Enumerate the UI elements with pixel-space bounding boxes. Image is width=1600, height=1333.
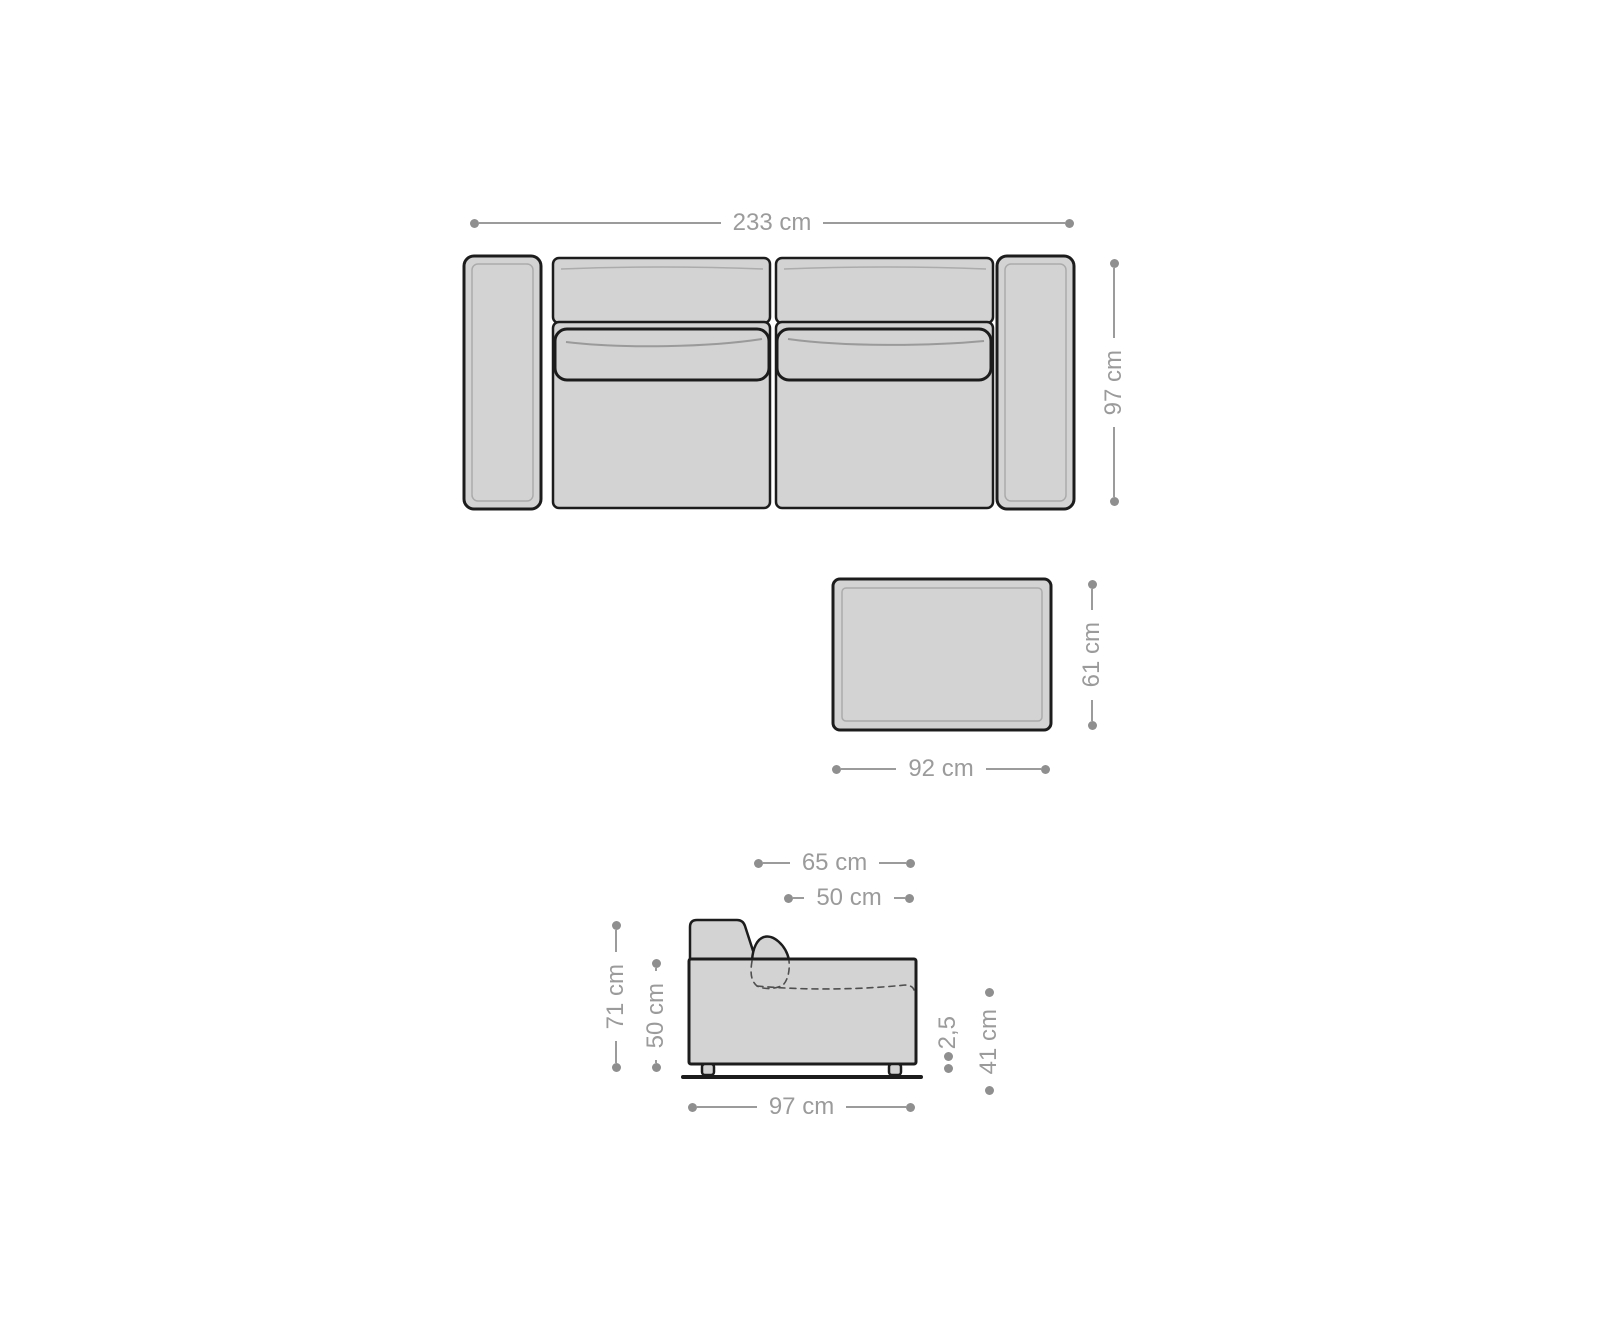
dim-line — [763, 862, 790, 864]
dim-sofa-depth: 97 cm — [1102, 259, 1126, 506]
dim-endpoint-dot — [1088, 721, 1097, 730]
dim-endpoint-dot — [754, 859, 763, 868]
dim-endpoint-dot — [944, 1052, 953, 1061]
dim-line — [846, 1106, 906, 1108]
dim-seat-height: 41 cm — [977, 988, 1001, 1074]
dim-endpoint-dot — [906, 859, 915, 868]
dim-sofa-depth-label: 97 cm — [1102, 338, 1126, 427]
dim-sofa-width-label: 233 cm — [721, 211, 824, 235]
dim-line — [1113, 268, 1115, 338]
dim-sofa-width: 233 cm — [470, 211, 1074, 235]
dimension-diagram: 233 cm 97 cm 61 cm 92 cm 65 cm 50 cm — [0, 0, 1600, 1333]
dim-line — [1113, 427, 1115, 497]
dim-ottoman-width: 92 cm — [832, 757, 1050, 781]
ottoman-top-view — [833, 579, 1051, 730]
dim-ottoman-depth: 61 cm — [1080, 580, 1104, 730]
side-leg-left — [702, 1064, 714, 1075]
sofa-seat-cushion-right — [777, 329, 991, 380]
dim-side-depth-label: 97 cm — [757, 1095, 846, 1119]
dim-leg-height: 2,5 — [936, 1008, 960, 1073]
dim-endpoint-dot — [1110, 259, 1119, 268]
dim-endpoint-dot — [470, 219, 479, 228]
dim-seat-depth-outer-label: 65 cm — [790, 851, 879, 875]
dim-endpoint-dot — [784, 894, 793, 903]
dim-line — [615, 1041, 617, 1063]
dim-endpoint-dot — [905, 894, 914, 903]
side-body — [689, 959, 916, 1064]
dim-endpoint-dot — [1065, 219, 1074, 228]
furniture-drawing — [0, 0, 1600, 1333]
dim-line — [479, 222, 721, 224]
dim-body-height: 50 cm — [644, 959, 668, 1072]
dim-line — [986, 768, 1041, 770]
dim-body-height-label: 50 cm — [644, 971, 668, 1060]
dim-total-height-label: 71 cm — [604, 952, 628, 1041]
sofa-armrest-left — [464, 256, 541, 509]
dim-seat-depth-outer: 65 cm — [754, 851, 915, 875]
dim-endpoint-dot — [1088, 580, 1097, 589]
dim-endpoint-dot — [906, 1103, 915, 1112]
sofa-seat-cushion-left — [555, 329, 769, 380]
dim-endpoint-dot — [652, 1063, 661, 1072]
dim-ottoman-width-label: 92 cm — [896, 757, 985, 781]
dim-endpoint-dot — [944, 1064, 953, 1073]
dim-endpoint-dot — [688, 1103, 697, 1112]
sofa-armrest-right — [997, 256, 1074, 509]
dim-line — [697, 1106, 757, 1108]
sofa-top-view — [464, 256, 1074, 509]
dim-seat-depth-label: 50 cm — [804, 886, 893, 910]
side-leg-right — [889, 1064, 901, 1075]
sofa-side-view — [683, 920, 921, 1077]
dim-line — [894, 897, 905, 899]
dim-line — [1091, 589, 1093, 610]
side-pillow — [752, 937, 789, 960]
dim-endpoint-dot — [1110, 497, 1119, 506]
dim-endpoint-dot — [652, 959, 661, 968]
dim-line — [615, 930, 617, 952]
dim-line — [823, 222, 1065, 224]
dim-leg-height-label: 2,5 — [936, 1008, 960, 1049]
dim-endpoint-dot — [612, 1063, 621, 1072]
dim-total-height: 71 cm — [604, 921, 628, 1072]
dim-line — [879, 862, 906, 864]
dim-seat-depth: 50 cm — [784, 886, 914, 910]
dim-seat-height-label: 41 cm — [977, 997, 1001, 1086]
dim-endpoint-dot — [612, 921, 621, 930]
dim-endpoint-dot — [985, 988, 994, 997]
dim-line — [793, 897, 804, 899]
dim-ottoman-depth-label: 61 cm — [1080, 610, 1104, 699]
dim-side-depth: 97 cm — [688, 1095, 915, 1119]
dim-endpoint-dot — [1041, 765, 1050, 774]
dim-endpoint-dot — [985, 1086, 994, 1095]
dim-line — [1091, 700, 1093, 721]
dim-line — [841, 768, 896, 770]
side-backrest — [690, 920, 756, 960]
dim-endpoint-dot — [832, 765, 841, 774]
ottoman-outline — [833, 579, 1051, 730]
